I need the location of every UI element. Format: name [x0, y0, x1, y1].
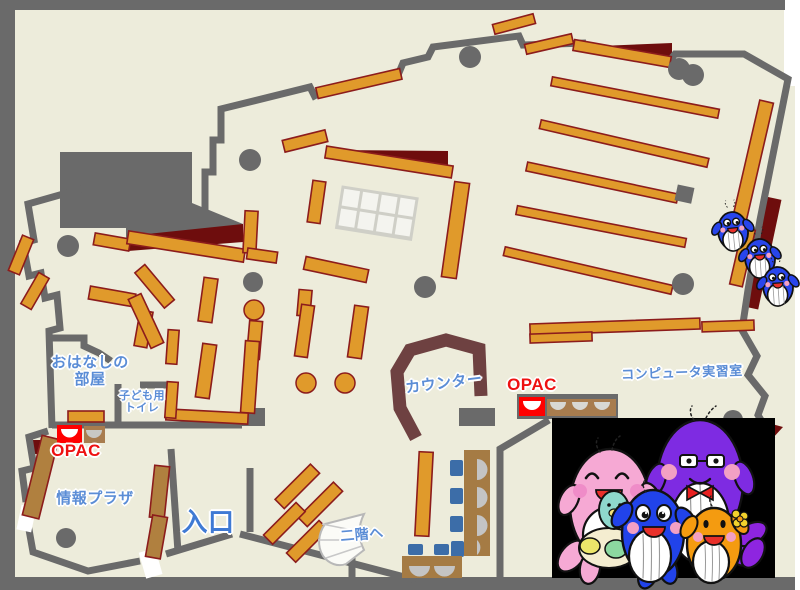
label-info-plaza: 情報プラザ [48, 491, 142, 508]
label-opac-right: OPAC [500, 376, 564, 395]
label-kids-toilet: 子ども用 トイレ [110, 390, 174, 414]
label-storytelling-room: おはなしの 部屋 [38, 355, 142, 388]
label-entrance: 入口 [176, 508, 240, 537]
label-opac-left: OPAC [46, 442, 106, 461]
library-floor-map: おはなしの 部屋 子ども用 トイレ OPAC 情報プラザ 入口 二階へ カウンタ… [0, 0, 800, 590]
opac-station-right [517, 394, 618, 419]
page-gap-right [795, 0, 800, 590]
counter-back-desk [459, 408, 495, 426]
